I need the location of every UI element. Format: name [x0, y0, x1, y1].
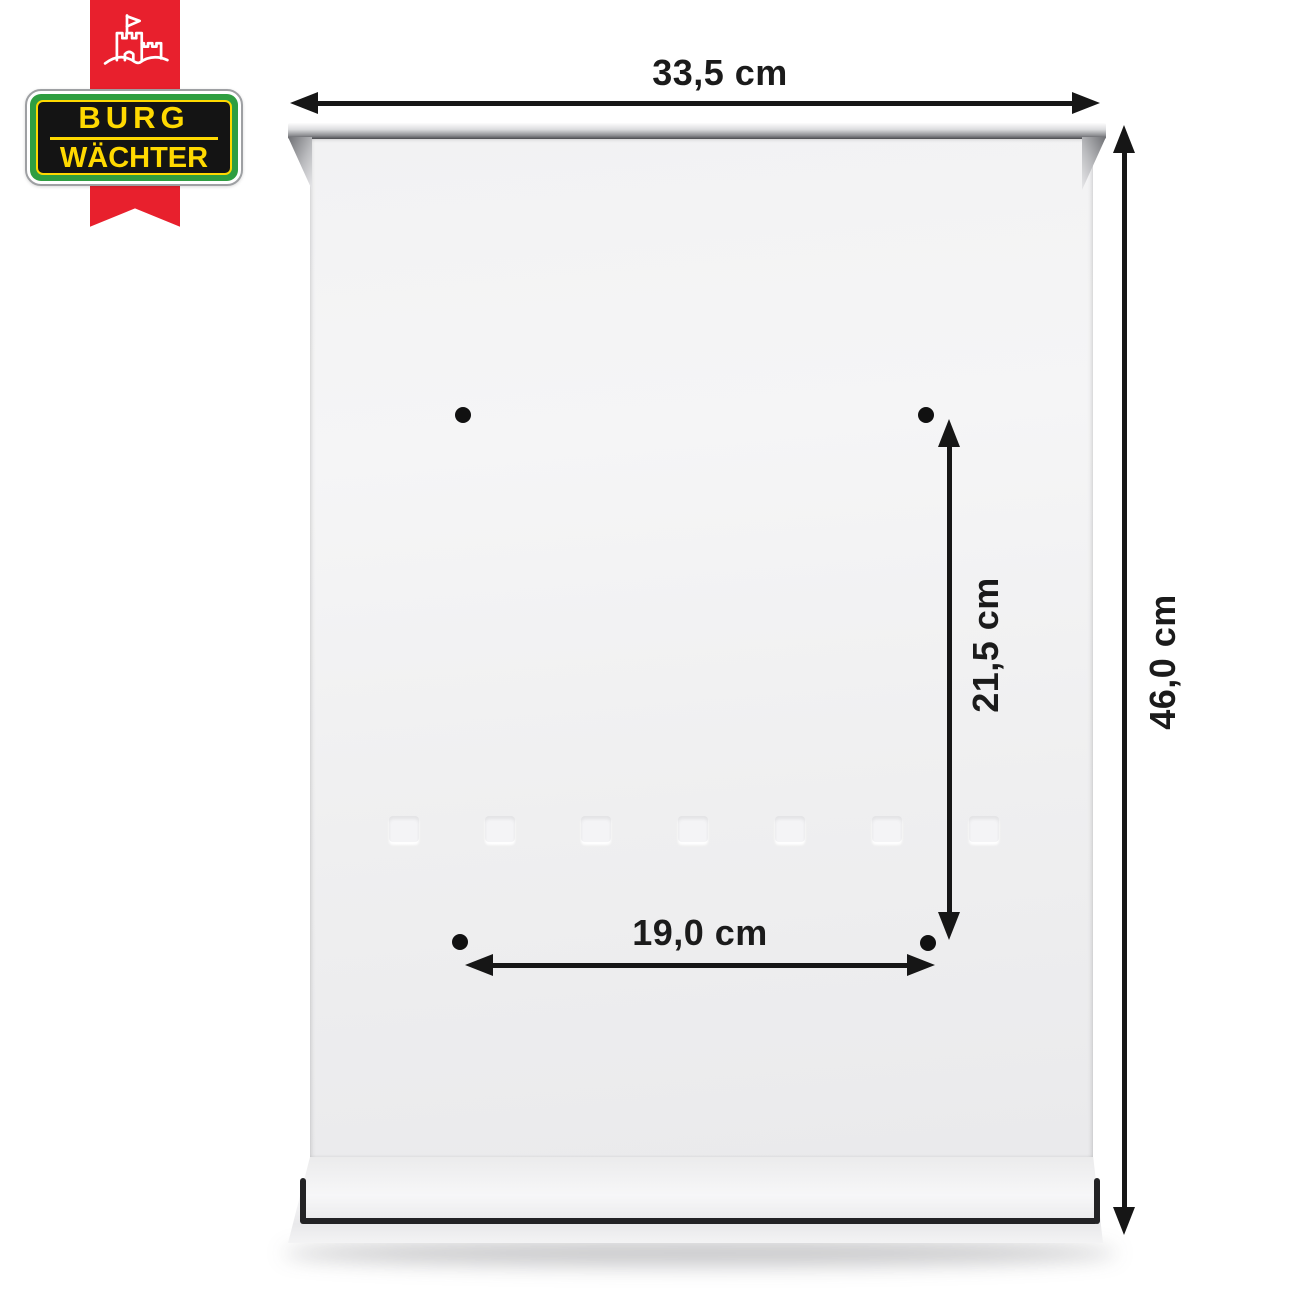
- mounting-hole-top-right: [918, 407, 934, 423]
- product-dimension-image: 33,5 cm 46,0 cm 21,5 cm 19,0 cm: [0, 0, 1300, 1300]
- arrow-right-icon: [907, 954, 935, 976]
- width-dimension-arrow: [290, 91, 1100, 117]
- embossed-slot: [678, 816, 708, 842]
- mailbox-right-flange: [1082, 137, 1106, 190]
- hole-spacing-horizontal-arrow: [465, 953, 935, 979]
- arrow-down-icon: [1113, 1207, 1135, 1235]
- brand-name-line2: WÄCHTER: [60, 144, 208, 173]
- castle-icon: [95, 4, 175, 80]
- arrow-shaft: [1122, 149, 1127, 1211]
- drop-shadow: [282, 1240, 1118, 1266]
- height-dimension-label: 46,0 cm: [1142, 594, 1184, 730]
- embossed-slot: [485, 816, 515, 842]
- arrow-down-icon: [938, 912, 960, 940]
- mailbox-hinge-rod: [301, 1218, 1098, 1224]
- mailbox-hinge-left: [300, 1178, 306, 1224]
- embossed-slot: [389, 816, 419, 842]
- width-dimension-label: 33,5 cm: [315, 52, 1125, 94]
- height-dimension-arrow: [1110, 125, 1140, 1235]
- arrow-shaft: [314, 101, 1076, 106]
- hole-spacing-horizontal-label: 19,0 cm: [465, 912, 935, 954]
- brand-logo-green-frame: BURG WÄCHTER: [30, 94, 238, 181]
- embossed-slot: [775, 816, 805, 842]
- brand-divider: [50, 137, 219, 140]
- embossed-slot: [969, 816, 999, 842]
- mailbox-left-flange: [288, 137, 312, 190]
- embossed-slot: [872, 816, 902, 842]
- brand-logo-black-field: BURG WÄCHTER: [36, 100, 232, 175]
- mounting-hole-top-left: [455, 407, 471, 423]
- embossed-slot: [581, 816, 611, 842]
- mailbox-top-rim: [288, 123, 1106, 139]
- arrow-right-icon: [1072, 92, 1100, 114]
- arrow-shaft: [947, 443, 952, 916]
- mailbox-hinge-right: [1094, 1178, 1100, 1224]
- hole-spacing-vertical-label: 21,5 cm: [965, 577, 1007, 713]
- arrow-shaft: [489, 963, 911, 968]
- brand-logo: BURG WÄCHTER: [25, 89, 243, 186]
- brand-name-line1: BURG: [78, 102, 189, 133]
- hole-spacing-vertical-arrow: [935, 419, 965, 940]
- mailbox-bottom-skirt: [288, 1157, 1103, 1243]
